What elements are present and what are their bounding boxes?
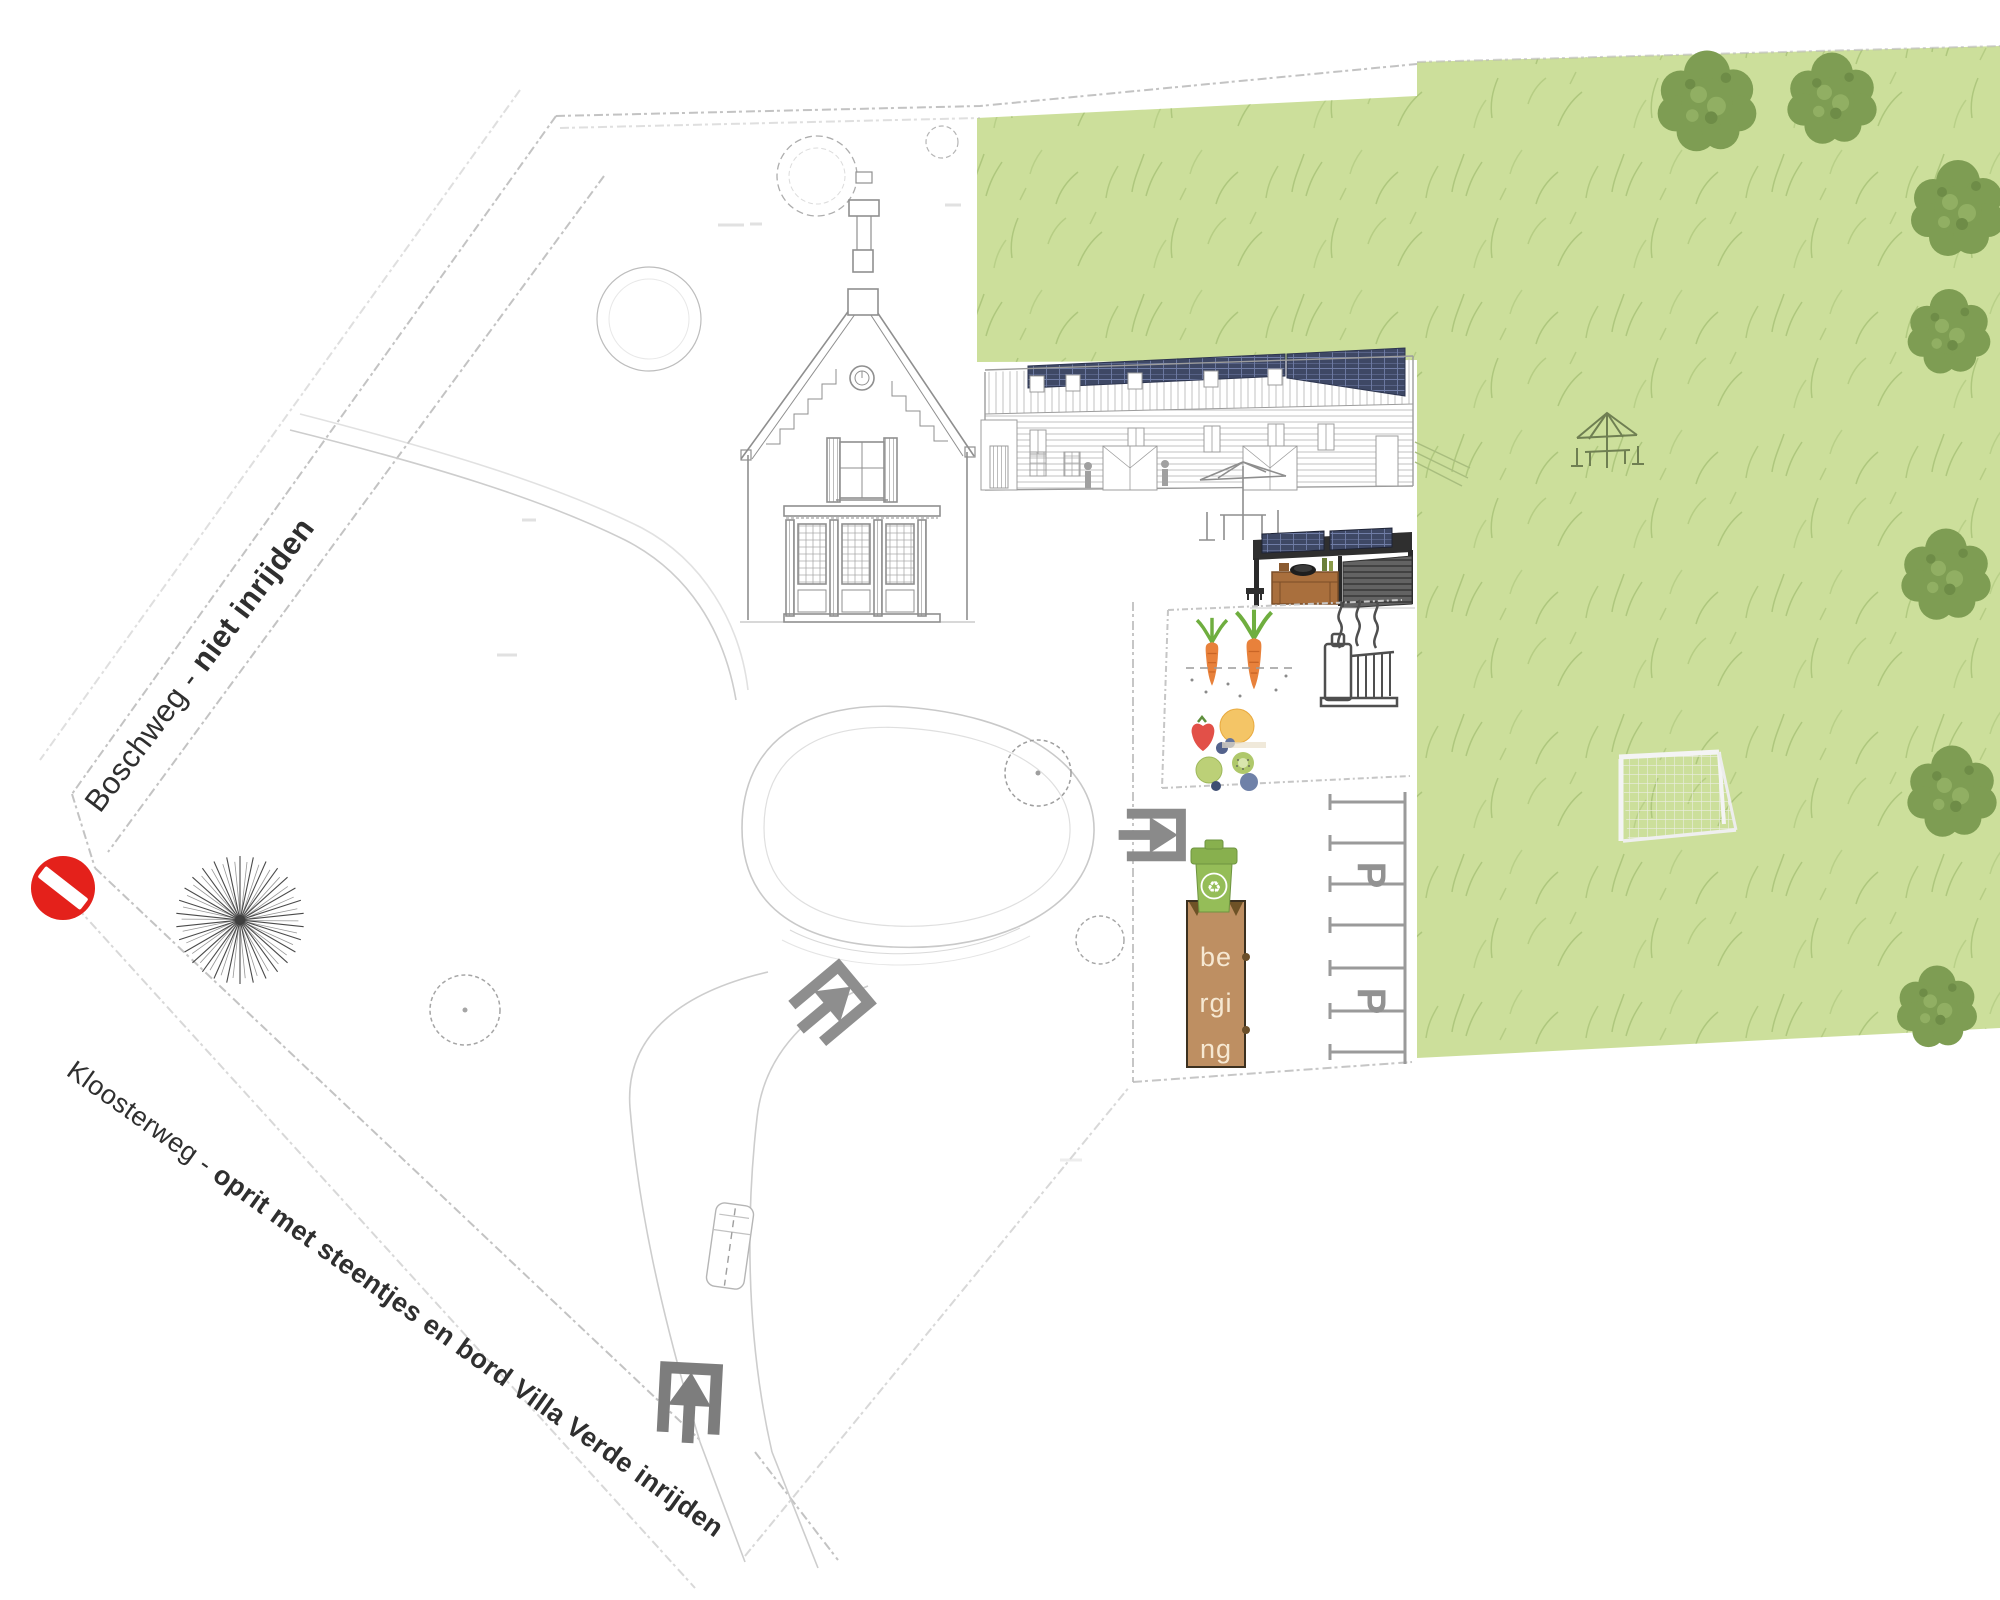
storage-label-line: rgi [1199,988,1232,1018]
parking-letter: P [1349,862,1393,889]
parking-stalls [1330,792,1405,1064]
outdoor-kitchen-drawing [1246,528,1415,608]
storage-label-line: ng [1200,1034,1232,1064]
recycle-icon: ♻ [1207,878,1221,897]
site-plan: P P be rgi ng ♻ Boschw [0,0,2000,1600]
small-cloud-tree [926,126,958,158]
soccer-goal-icon [1619,752,1736,841]
green-patch-top [977,96,1417,362]
counter [1272,572,1338,604]
site-plan-canvas: P P be rgi ng ♻ [0,0,2000,1600]
carrot-icon [1236,610,1271,690]
solar-panels-icon [1330,528,1392,550]
house-elevation-drawing [740,172,975,622]
fruits-icon [1192,709,1258,791]
storage-label-line: be [1200,942,1232,972]
bench [1246,588,1264,594]
driveway-path [290,414,868,1568]
van-sketch [705,1202,754,1290]
vegetable-garden-icons [1162,600,1410,791]
sunburst-tree-icon [176,856,305,984]
entrance-arrow-icon-bottom [662,1367,717,1444]
storage-shed: be rgi ng [1187,901,1250,1067]
shrub-circle [1076,916,1124,964]
entrance-arrow-icon-parking [1119,814,1181,857]
pond-circle [597,267,701,371]
no-entry-icon [31,856,95,920]
carrot-icon [1197,618,1227,686]
entrance-arrow-icon-middle [785,966,869,1048]
waste-bin-icon: ♻ [1191,840,1237,912]
heater-icon [1321,600,1397,706]
barn-elevation-drawing [981,348,1470,540]
solar-panels-icon [1262,531,1324,553]
garden-fence [1162,600,1410,788]
parking-letter: P [1349,988,1393,1015]
loop-path [742,706,1094,965]
